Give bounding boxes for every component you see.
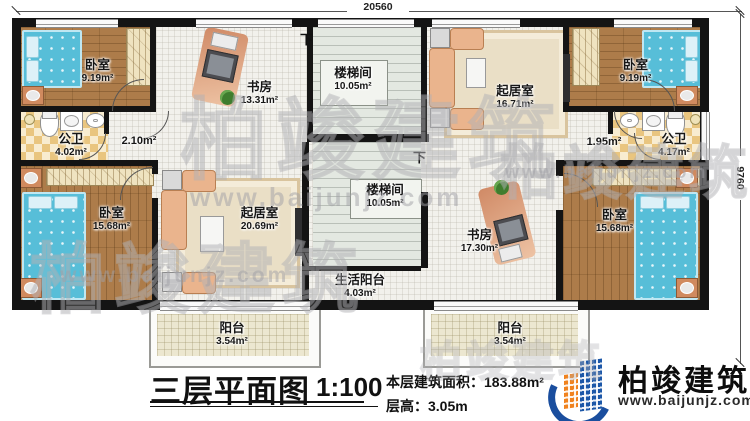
nightstand [20, 278, 42, 298]
pillow [666, 196, 690, 209]
window [614, 19, 692, 28]
nightstand [676, 278, 698, 298]
wall-stairwell [302, 142, 309, 306]
shower-head [24, 114, 35, 125]
room-name: 卧室 [602, 208, 627, 223]
room-label-bedroom-bottom-right: 卧室 15.68m² [577, 208, 652, 235]
pillow [685, 60, 698, 82]
room-label-bedroom-bottom-left: 卧室 15.68m² [74, 206, 149, 233]
title-underline [150, 401, 364, 403]
hall-left-area-label: 2.10m² [105, 135, 173, 148]
room-label-stairwell-top: 楼梯间 10.05m² [320, 66, 386, 93]
room-name: 阳台 [497, 321, 522, 336]
side-table [430, 108, 450, 128]
floor-area-text: 本层建筑面积：183.88m² [386, 372, 544, 392]
room-label-stairwell-bottom: 楼梯间 10.05m² [352, 183, 418, 210]
room-area: 15.68m² [596, 223, 633, 235]
room-name: 公卫 [58, 132, 83, 147]
floor-plan-page: 卧室 9.19m² 书房 13.31m² 楼梯间 10.05m² 起居室 16.… [0, 0, 750, 421]
tv [563, 54, 570, 102]
room-name: 起居室 [496, 84, 534, 99]
room-name: 卧室 [623, 58, 648, 73]
pillow [26, 36, 39, 58]
company-website: www.baijunjz.com [618, 392, 750, 408]
sofa [429, 48, 455, 108]
room-name: 书房 [467, 228, 492, 243]
logo-tower-blue [580, 358, 602, 411]
room-label-study-bottom: 书房 17.30m² [442, 228, 517, 255]
room-label-living-top: 起居室 16.71m² [470, 84, 560, 111]
floor-height-text: 层高：3.05m [386, 396, 468, 416]
wardrobe [572, 28, 600, 86]
wall-stairwell [421, 18, 427, 142]
window [318, 19, 414, 28]
room-area: 13.31m² [241, 95, 278, 107]
wall-interior [152, 198, 158, 300]
drawing-title: 三层平面图 [150, 366, 310, 411]
room-label-living-bottom: 起居室 20.69m² [222, 206, 297, 233]
room-label-balcony-right: 阳台 3.54m² [468, 321, 552, 348]
room-label-service-balcony: 生活阳台 4.03m² [318, 273, 402, 300]
dimension-right-value: 9760 [734, 156, 746, 200]
balcony-door [434, 301, 578, 311]
laptop [210, 32, 238, 51]
nightstand [22, 86, 44, 105]
room-label-bedroom-top-right: 卧室 9.19m² [598, 58, 673, 85]
coffee-table [200, 216, 224, 252]
computer-monitor [202, 49, 239, 83]
stair-down-mark: 下 [413, 147, 426, 166]
stair-down-mark: 下 [300, 29, 313, 48]
nightstand [20, 168, 42, 188]
wall-interior [556, 166, 563, 176]
room-label-bathroom-left: 公卫 4.02m² [35, 132, 107, 159]
window [36, 19, 118, 28]
room-area: 4.03m² [344, 288, 376, 300]
room-name: 楼梯间 [366, 183, 404, 198]
room-name: 书房 [247, 80, 272, 95]
room-name: 阳台 [219, 321, 244, 336]
washing-machine [642, 111, 665, 131]
room-label-bedroom-top-left: 卧室 9.19m² [60, 58, 135, 85]
wall-interior [12, 160, 158, 166]
room-area: 20.69m² [241, 221, 278, 233]
sofa [161, 190, 187, 250]
wall-stairwell [421, 192, 428, 268]
dimension-top-value: 20560 [347, 1, 409, 13]
window [432, 19, 520, 28]
room-label-balcony-left: 阳台 3.54m² [190, 321, 274, 348]
wall-stairwell [309, 266, 421, 271]
sink [86, 113, 105, 128]
room-name: 楼梯间 [334, 66, 372, 81]
room-label-study-top: 书房 13.31m² [222, 80, 297, 107]
wall-stairwell [307, 134, 429, 142]
side-table [162, 170, 182, 190]
room-area: 17.30m² [461, 243, 498, 255]
drawing-scale: 1:100 [316, 372, 383, 403]
side-table [430, 28, 450, 48]
side-table [162, 272, 182, 292]
room-name: 生活阳台 [335, 273, 385, 288]
balcony-door [160, 301, 310, 311]
room-area: 4.17m² [658, 147, 690, 159]
room-area: 3.54m² [216, 336, 248, 348]
pillow [26, 60, 39, 82]
room-area: 9.19m² [82, 73, 114, 85]
nightstand [676, 86, 698, 105]
room-name: 卧室 [99, 206, 124, 221]
pillow [28, 196, 52, 209]
room-area: 3.54m² [494, 336, 526, 348]
room-name: 卧室 [85, 58, 110, 73]
room-area: 1.95m² [587, 136, 622, 149]
company-logo-icon [550, 354, 614, 420]
wall-interior [556, 210, 563, 306]
wall-interior [608, 112, 613, 134]
room-area: 16.71m² [496, 99, 533, 111]
pillow [685, 36, 698, 58]
room-area: 2.10m² [122, 135, 157, 148]
room-name: 起居室 [241, 206, 279, 221]
plant [494, 180, 509, 195]
hall-right-area-label: 1.95m² [570, 136, 638, 149]
title-underline [150, 406, 378, 407]
armchair [450, 108, 484, 130]
wall-interior [556, 160, 709, 166]
armchair [450, 28, 484, 50]
washing-machine [60, 111, 83, 131]
armchair [182, 272, 216, 294]
room-area: 15.68m² [93, 221, 130, 233]
wall-exterior-bottom [12, 300, 709, 310]
room-area: 10.05m² [334, 81, 371, 93]
wall-interior [150, 18, 156, 112]
logo-tower-orange [564, 373, 578, 409]
room-area: 4.02m² [55, 147, 87, 159]
window [196, 19, 292, 28]
room-name: 公卫 [661, 132, 686, 147]
room-area: 9.19m² [620, 73, 652, 85]
armchair [182, 170, 216, 192]
wall-interior [104, 112, 109, 134]
room-label-bathroom-right: 公卫 4.17m² [638, 132, 710, 159]
room-area: 10.05m² [366, 198, 403, 210]
nightstand [676, 168, 698, 188]
